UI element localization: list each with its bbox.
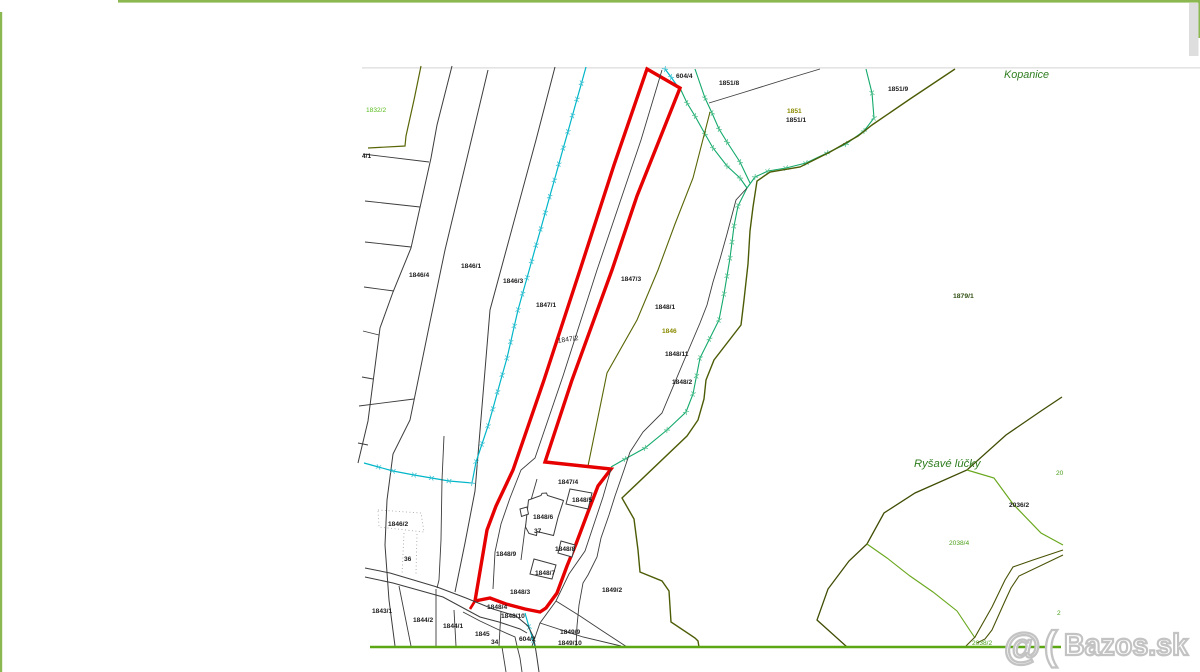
svg-text:1849/10: 1849/10	[558, 640, 582, 647]
svg-text:(: (	[1044, 624, 1058, 668]
svg-text:1846/3: 1846/3	[503, 278, 524, 285]
svg-text:1847/1: 1847/1	[536, 302, 557, 309]
svg-text:1848/9: 1848/9	[496, 551, 517, 558]
svg-text:604/2: 604/2	[519, 636, 536, 643]
svg-text:1849/9: 1849/9	[560, 629, 581, 636]
svg-text:604/4: 604/4	[676, 73, 693, 80]
svg-text:1851/9: 1851/9	[888, 86, 909, 93]
svg-text:1848/11: 1848/11	[665, 351, 689, 358]
svg-text:1847/3: 1847/3	[621, 276, 642, 283]
svg-text:Bazos.sk: Bazos.sk	[1064, 627, 1189, 662]
svg-text:1848/1: 1848/1	[655, 304, 676, 311]
svg-text:2038/2: 2038/2	[972, 640, 993, 647]
svg-text:1847/4: 1847/4	[558, 479, 579, 486]
svg-text:1851/1: 1851/1	[786, 117, 807, 124]
svg-text:1848/10: 1848/10	[501, 613, 525, 620]
svg-text:1848/6: 1848/6	[533, 514, 554, 521]
svg-text:1846/4: 1846/4	[409, 272, 430, 279]
svg-text:20: 20	[1056, 470, 1064, 477]
svg-text:2038/4: 2038/4	[949, 540, 970, 547]
svg-text:34: 34	[491, 639, 499, 646]
svg-text:1846/1: 1846/1	[461, 263, 482, 270]
svg-text:1851: 1851	[787, 108, 802, 115]
svg-text:1848/4: 1848/4	[487, 604, 508, 611]
svg-text:1844/2: 1844/2	[413, 617, 434, 624]
svg-text:1848/2: 1848/2	[672, 379, 693, 386]
svg-text:1851/8: 1851/8	[719, 80, 740, 87]
svg-text:1846/2: 1846/2	[388, 521, 409, 528]
svg-text:4/1: 4/1	[362, 153, 371, 160]
svg-text:2036/2: 2036/2	[1009, 502, 1030, 509]
svg-text:Kopanice: Kopanice	[1004, 69, 1049, 81]
svg-text:1848/5: 1848/5	[572, 497, 593, 504]
svg-text:Ryšavé lúčky: Ryšavé lúčky	[914, 458, 982, 470]
svg-text:1845: 1845	[475, 631, 490, 638]
svg-text:1843/1: 1843/1	[372, 608, 393, 615]
svg-text:2: 2	[1057, 610, 1061, 617]
svg-text:1832/2: 1832/2	[366, 107, 387, 114]
svg-text:1848/7: 1848/7	[535, 570, 556, 577]
svg-text:36: 36	[404, 556, 412, 563]
svg-text:1879/1: 1879/1	[953, 293, 974, 300]
svg-text:1848/3: 1848/3	[510, 589, 531, 596]
svg-text:@: @	[1004, 625, 1041, 667]
svg-text:1849/2: 1849/2	[602, 587, 623, 594]
svg-text:1844/1: 1844/1	[443, 623, 464, 630]
svg-text:1846: 1846	[662, 328, 677, 335]
svg-text:1848/8: 1848/8	[555, 546, 576, 553]
svg-text:37: 37	[534, 528, 542, 535]
